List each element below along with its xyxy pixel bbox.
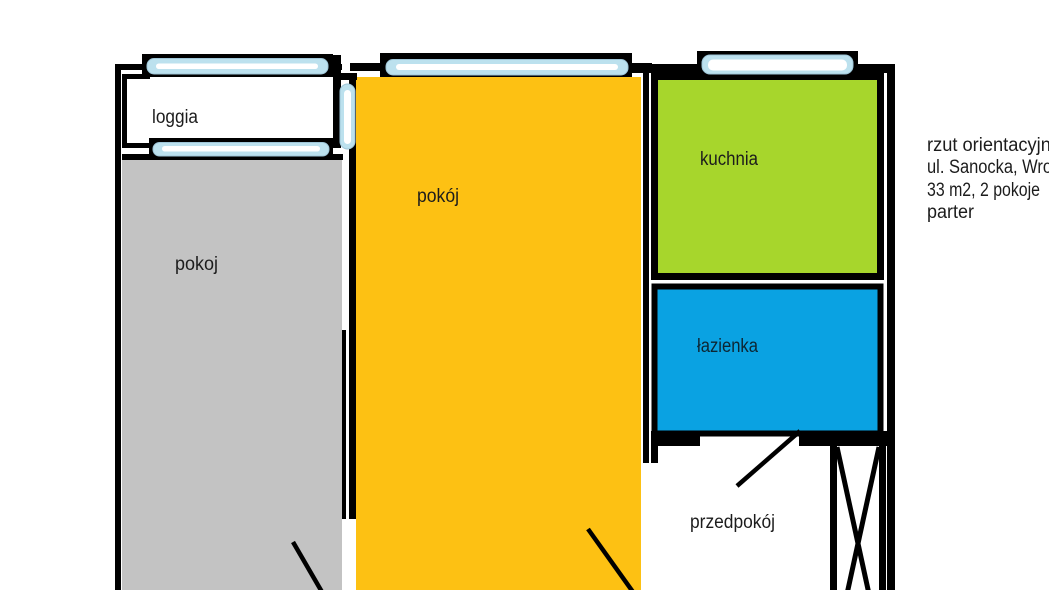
svg-text:parter: parter [927, 202, 975, 223]
svg-text:pokój: pokój [417, 186, 459, 207]
svg-text:łazienka: łazienka [697, 336, 758, 357]
svg-text:ul. Sanocka, Wrocław: ul. Sanocka, Wrocław [927, 157, 1049, 178]
svg-text:kuchnia: kuchnia [700, 149, 758, 170]
svg-text:przedpokój: przedpokój [690, 512, 775, 533]
svg-text:loggia: loggia [152, 107, 198, 128]
svg-text:pokoj: pokoj [175, 254, 218, 275]
svg-text:33 m2, 2 pokoje: 33 m2, 2 pokoje [927, 180, 1040, 201]
svg-text:rzut orientacyjny: rzut orientacyjny [927, 135, 1049, 156]
